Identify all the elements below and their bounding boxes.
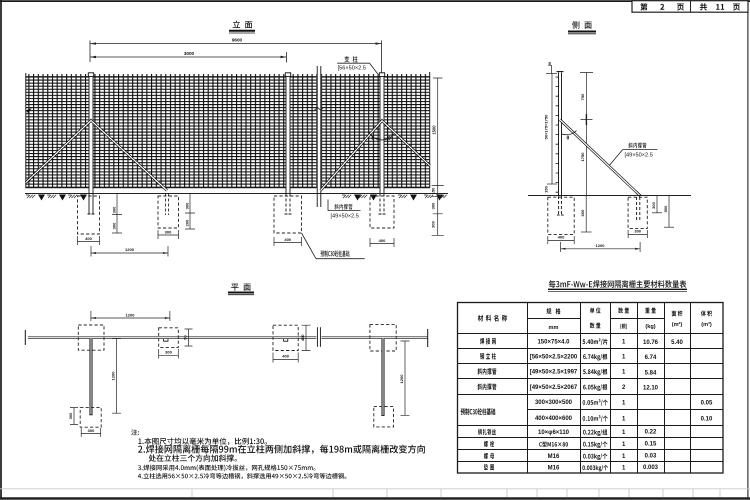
svg-text:[56×50×2.5×2200: [56×50×2.5×2200 [530, 355, 578, 361]
svg-text:50×175=1750: 50×175=1750 [544, 114, 549, 139]
svg-text:M16: M16 [548, 466, 560, 472]
svg-text:300: 300 [165, 229, 172, 234]
svg-text:400: 400 [558, 235, 565, 240]
svg-text:50: 50 [183, 335, 188, 340]
svg-text:300: 300 [68, 412, 73, 419]
svg-text:θ: θ [567, 136, 570, 142]
svg-text:[49×50×2.5: [49×50×2.5 [331, 214, 359, 220]
svg-text:[49×50×2.5×1997: [49×50×2.5×1997 [530, 370, 578, 376]
svg-text:1200: 1200 [111, 371, 116, 381]
svg-text:300: 300 [112, 206, 117, 213]
svg-text:[49×50×2.5×2067: [49×50×2.5×2067 [530, 385, 578, 391]
svg-text:5.40: 5.40 [671, 340, 683, 346]
svg-text:5.84: 5.84 [645, 371, 657, 377]
svg-text:1200: 1200 [596, 243, 606, 248]
svg-text:300: 300 [88, 428, 95, 433]
svg-text:[49×50×2.5: [49×50×2.5 [625, 153, 653, 159]
svg-text:150: 150 [544, 185, 549, 192]
svg-text:150×75×4.0: 150×75×4.0 [537, 340, 570, 346]
svg-text:0.05: 0.05 [701, 401, 713, 407]
svg-text:0.22: 0.22 [645, 430, 657, 436]
svg-text:150: 150 [430, 187, 435, 194]
svg-text:1500: 1500 [432, 125, 437, 135]
svg-text:[56×50×2.5: [56×50×2.5 [338, 65, 366, 71]
svg-text:1200: 1200 [126, 312, 136, 317]
svg-text:θ: θ [388, 136, 391, 142]
svg-text:3000: 3000 [184, 51, 195, 56]
svg-text:1750: 1750 [580, 152, 585, 162]
svg-text:300: 300 [430, 202, 435, 209]
svg-text:(kg): (kg) [645, 324, 655, 330]
svg-text:1200: 1200 [125, 247, 135, 252]
svg-text:(m³): (m³) [701, 321, 712, 328]
svg-text:200: 200 [185, 219, 190, 226]
svg-text:1200: 1200 [399, 374, 404, 384]
svg-text:10.76: 10.76 [643, 340, 659, 346]
svg-text:300: 300 [651, 201, 656, 208]
svg-text:400: 400 [379, 238, 386, 243]
svg-text:6.74: 6.74 [645, 355, 657, 361]
svg-text:400: 400 [300, 334, 305, 341]
svg-text:0.10: 0.10 [701, 417, 713, 423]
svg-text:50: 50 [547, 61, 552, 66]
svg-text:300: 300 [185, 202, 190, 209]
svg-text:12.10: 12.10 [643, 386, 659, 392]
svg-text:300: 300 [634, 229, 641, 234]
svg-text:9600: 9600 [232, 37, 243, 42]
svg-text:(m²): (m²) [672, 321, 683, 328]
svg-text:300: 300 [430, 220, 435, 227]
svg-text:0.15: 0.15 [645, 442, 657, 448]
svg-text:M16: M16 [548, 454, 560, 460]
svg-text:400: 400 [85, 236, 92, 241]
svg-text:400: 400 [284, 237, 291, 242]
svg-text:600: 600 [580, 209, 585, 216]
svg-text:0.003: 0.003 [643, 465, 659, 471]
svg-text:θ: θ [372, 136, 375, 142]
svg-text:300: 300 [112, 222, 117, 229]
svg-text:0.03: 0.03 [645, 454, 657, 460]
svg-text:300: 300 [165, 350, 172, 355]
svg-text:400: 400 [282, 354, 289, 359]
svg-text:750: 750 [580, 93, 585, 100]
svg-text:10×φ6×110: 10×φ6×110 [538, 430, 570, 436]
svg-text:mm: mm [549, 325, 559, 331]
svg-text:400×400×600: 400×400×600 [535, 416, 573, 422]
svg-text:300×300×500: 300×300×500 [535, 400, 573, 406]
svg-text:500: 500 [663, 205, 668, 212]
